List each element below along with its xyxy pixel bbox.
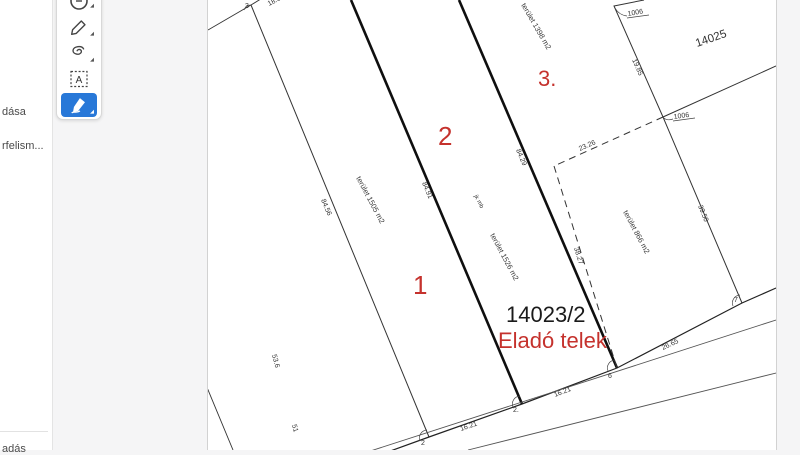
- menu-item-partial-3[interactable]: adás: [2, 443, 26, 455]
- plot-numbers: 1 2 3.: [413, 66, 556, 300]
- svg-text:A: A: [76, 75, 83, 86]
- menu-item-partial-2[interactable]: rfelism...: [2, 140, 44, 152]
- dimension-label: 16.21: [553, 386, 572, 399]
- dropdown-caret-icon: ◢: [90, 32, 94, 37]
- annotation-toolbar: ◢ ◢ ◢ A: [56, 0, 102, 120]
- plot-number-1: 1: [413, 270, 427, 300]
- point-label-6: 6: [608, 373, 612, 380]
- menu-item-partial-1[interactable]: dása: [2, 106, 26, 118]
- point-label-2: 2: [421, 440, 425, 447]
- for-sale-label: Eladó telek: [498, 328, 608, 353]
- dropdown-caret-icon: ◢: [90, 110, 94, 115]
- dimension-label: 39.50: [696, 204, 709, 223]
- parcel-id-label: 14023/2: [506, 302, 586, 327]
- dimension-label: 18.01: [267, 0, 286, 8]
- parcel-boundaries: [208, 0, 776, 450]
- dimension-label: 51: [290, 424, 299, 433]
- lasso-tool-icon: [68, 42, 90, 64]
- area-label-plot1: terület 1505 m2: [354, 175, 386, 225]
- dimension-label: 84.91: [420, 181, 433, 200]
- dimension-label: 84.29: [514, 148, 527, 167]
- point-label-2b: 2.: [513, 407, 519, 414]
- plot-number-3: 3.: [538, 66, 556, 91]
- highlighter-tool-icon: [68, 94, 90, 116]
- dimension-label: 19.85: [630, 58, 644, 77]
- adjacent-parcel-label: 14025: [694, 28, 728, 50]
- plot-number-2: 2: [438, 121, 452, 151]
- left-panel: dása rfelism... adás: [0, 0, 53, 450]
- text-box-tool-icon: A: [67, 68, 91, 90]
- panel-divider: [0, 431, 48, 432]
- vertex-ticks: [244, 5, 740, 441]
- shape-tool-icon: [67, 0, 91, 11]
- dimension-label: 84.56: [319, 198, 332, 217]
- pdf-viewer-app: dása rfelism... adás ◢ ◢: [0, 0, 800, 450]
- pdf-page[interactable]: 84.56 84.91 84.29 19.85 39.50 23.26 38.2…: [207, 0, 777, 450]
- dropdown-caret-icon: ◢: [90, 4, 94, 9]
- highlighter-tool-button[interactable]: ◢: [61, 93, 97, 117]
- text-box-tool-button[interactable]: A: [61, 67, 97, 91]
- shape-tool-button[interactable]: ◢: [61, 0, 97, 11]
- dropdown-caret-icon: ◢: [90, 58, 94, 63]
- lasso-tool-button[interactable]: ◢: [61, 41, 97, 65]
- dimension-label: 16.21: [459, 421, 478, 433]
- pen-tool-button[interactable]: ◢: [61, 15, 97, 39]
- point-label-3: 3: [245, 3, 249, 10]
- small-note-label: jk mb: [472, 193, 485, 210]
- dimension-label: 38.27: [572, 247, 584, 266]
- area-label-plot2: terület 1526 m2: [488, 232, 520, 282]
- node-label-1006-b: 1006: [673, 112, 690, 121]
- area-label-sub: terület 866 m2: [621, 209, 651, 256]
- dimension-label: 53.6: [270, 354, 280, 369]
- point-markers: 3 2 2. 6 7 1006 1006: [245, 3, 738, 447]
- dimension-label: 26.65: [661, 338, 680, 352]
- node-label-1006-a: 1006: [627, 8, 644, 18]
- pen-tool-icon: [68, 16, 90, 38]
- dimension-label: 23.26: [578, 139, 597, 153]
- point-label-7: 7: [734, 297, 738, 304]
- area-label-plot3: terület 1398 m2: [519, 2, 553, 52]
